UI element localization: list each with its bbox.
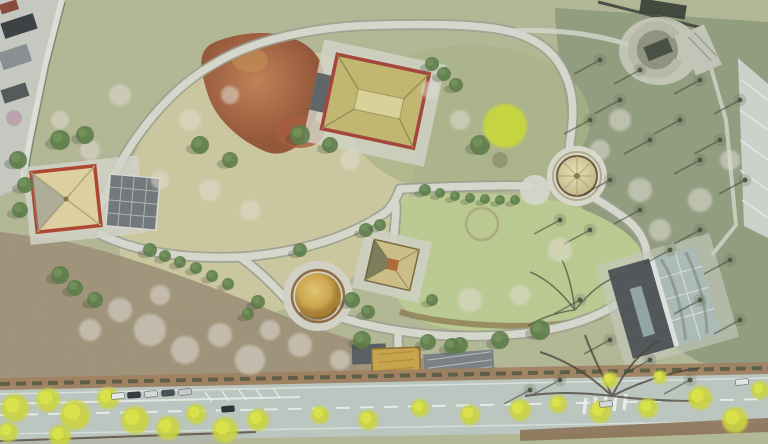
aerial-park-photo	[0, 0, 768, 444]
photo-canvas	[0, 0, 768, 444]
photo-grain	[0, 0, 768, 444]
